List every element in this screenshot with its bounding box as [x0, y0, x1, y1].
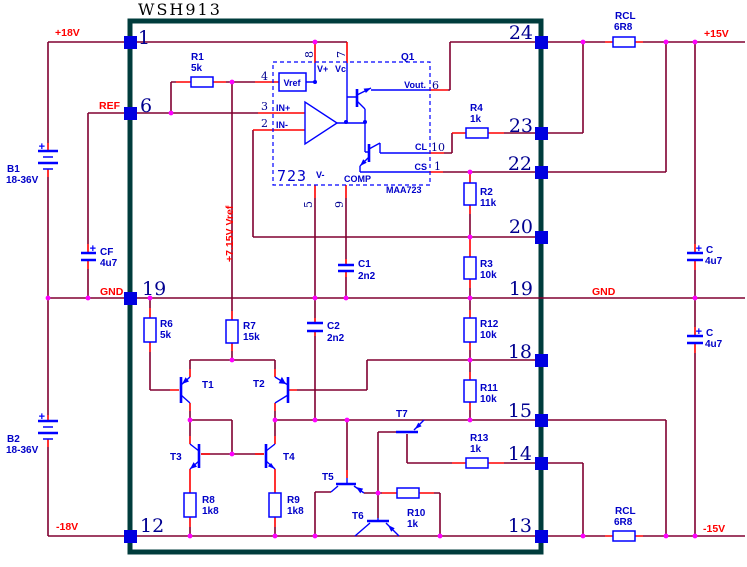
vref-block-label: Vref	[283, 78, 301, 88]
pin-number-6: 6	[432, 79, 439, 92]
resistor-R7[interactable]: R7 15k	[226, 320, 260, 343]
resistor-R2[interactable]: R2 11k	[464, 183, 497, 209]
pin-number: 19	[142, 278, 166, 300]
pin-number-9: 9	[333, 201, 346, 208]
resistor-R9[interactable]: R9 1k8	[269, 493, 304, 517]
regulator-designator: Q1	[401, 52, 415, 63]
transistor-T5[interactable]: T5	[322, 472, 364, 493]
battery-B2[interactable]: + B2 18-36V	[6, 411, 58, 456]
vplus-label: V+	[317, 64, 328, 74]
junction-dot	[344, 120, 348, 124]
value: 1k8	[202, 506, 219, 517]
ref: C	[706, 328, 713, 339]
ref: T4	[283, 452, 295, 463]
vc-label: Vc	[335, 64, 346, 74]
value: 10k	[480, 330, 497, 341]
ref: RCL	[615, 11, 636, 22]
capacitor-C2[interactable]: C2 2n2	[307, 321, 345, 344]
pin-number-8: 8	[303, 51, 316, 58]
ref: C	[706, 245, 713, 256]
junction-dot	[313, 80, 317, 84]
ref: B1	[7, 164, 20, 175]
ref: R10	[407, 508, 426, 519]
transistor-T4[interactable]: T4	[266, 444, 295, 469]
capacitor-C-top-right[interactable]: + C 4u7	[687, 243, 723, 267]
internal-transistor-bars	[357, 89, 369, 162]
pin-number-7: 7	[335, 51, 348, 58]
pin-number-10: 10	[431, 141, 445, 154]
ref: R1	[191, 52, 204, 63]
pin-number: 1	[138, 27, 150, 49]
value: 11k	[480, 198, 497, 209]
pin-number: 15	[508, 400, 532, 422]
resistor-R10[interactable]: R10 1k	[397, 488, 426, 530]
ref: T6	[352, 511, 364, 522]
value: 1k8	[287, 506, 304, 517]
pin-number-2: 2	[261, 117, 268, 130]
capacitor-C1[interactable]: C1 2n2	[338, 259, 376, 282]
comp-label: COMP	[344, 174, 371, 184]
ref: C2	[327, 321, 340, 332]
pin-number-1: 1	[434, 160, 441, 173]
transistor-T6[interactable]: T6	[352, 511, 399, 536]
junction-dot	[363, 120, 367, 124]
value: 6R8	[614, 517, 633, 528]
capacitor-CF[interactable]: + CF 4u7	[81, 243, 118, 269]
value: 2n2	[358, 271, 376, 282]
pin-number-19-right: 19	[509, 278, 533, 300]
ref: B2	[7, 434, 20, 445]
ref: R13	[470, 433, 489, 444]
ref: C1	[358, 259, 371, 270]
ref: R12	[480, 319, 499, 330]
net-label-ref: REF	[99, 100, 121, 112]
in-minus-label: IN-	[276, 120, 288, 130]
polarity-plus: +	[39, 141, 45, 153]
polarity-plus: +	[39, 411, 45, 423]
net-label-plus18: +18V	[55, 27, 80, 39]
resistor-R6[interactable]: R6 5k	[144, 318, 173, 342]
ref: R6	[160, 319, 173, 330]
value: 5k	[160, 330, 172, 341]
module-title: WSH913	[138, 0, 222, 19]
internal-npn-arrow	[364, 88, 371, 93]
net-label-minus18: -18V	[56, 521, 78, 533]
ref: CF	[100, 247, 113, 258]
polarity-plus: +	[696, 326, 702, 338]
value: 18-36V	[6, 175, 39, 186]
value: 1k	[407, 519, 419, 530]
capacitor-C-bottom-right[interactable]: + C 4u7	[687, 326, 723, 350]
value: 10k	[480, 394, 497, 405]
transistor-T1[interactable]: T1	[181, 377, 214, 403]
value: 4u7	[705, 256, 723, 267]
pin-number: 23	[509, 115, 533, 137]
ref: T7	[396, 409, 408, 420]
resistor-R1[interactable]: R1 5k	[191, 52, 213, 87]
vminus-label: V-	[316, 170, 325, 180]
pin-number-4: 4	[261, 70, 268, 83]
net-label-gnd-left: GND	[100, 286, 124, 298]
ref: RCL	[615, 506, 636, 517]
resistor-RCL-top[interactable]: RCL 6R8	[613, 11, 636, 47]
pin-number: 18	[508, 341, 532, 363]
resistor-RCL-bottom[interactable]: RCL 6R8	[613, 506, 636, 541]
resistor-R12[interactable]: R12 10k	[464, 318, 499, 342]
net-label-plus15: +15V	[704, 28, 729, 40]
ref: R4	[470, 103, 483, 114]
schematic-canvas: Vref V+ Vc IN+ IN- V- COMP Vout. CL CS 7…	[0, 0, 747, 567]
net-label-minus15: -15V	[703, 523, 725, 535]
module-boundary	[130, 21, 541, 552]
resistor-R13[interactable]: R13 1k	[466, 433, 489, 468]
net-label-vref-rail: +7.15V Vref	[224, 205, 236, 262]
resistor-R11[interactable]: R11 10k	[464, 380, 498, 405]
value: 15k	[243, 332, 260, 343]
ref: T3	[170, 452, 182, 463]
value: 4u7	[705, 339, 723, 350]
ref: R7	[243, 321, 256, 332]
polarity-plus: +	[90, 243, 96, 255]
in-plus-label: IN+	[276, 103, 290, 113]
ref: R2	[480, 187, 493, 198]
pin-number-3: 3	[261, 100, 268, 113]
ref: R11	[480, 383, 498, 394]
cs-label: CS	[414, 162, 427, 172]
pin-number: 6	[140, 95, 152, 117]
pin-number: 24	[509, 22, 533, 44]
resistor-R4[interactable]: R4 1k	[466, 103, 488, 138]
ref: T1	[202, 380, 214, 391]
pin-number: 12	[140, 515, 164, 537]
value: 10k	[480, 270, 497, 281]
ref: T5	[322, 472, 334, 483]
regulator-core-label: 723	[277, 167, 307, 185]
transistor-T2[interactable]: T2	[253, 377, 288, 403]
pin-number: 20	[509, 216, 533, 238]
schematic-drawing: Vref V+ Vc IN+ IN- V- COMP Vout. CL CS 7…	[0, 0, 747, 567]
transistor-T3[interactable]: T3	[170, 444, 199, 469]
battery-B1[interactable]: + B1 18-36V	[6, 141, 58, 186]
value: 6R8	[614, 22, 633, 33]
value: 1k	[470, 444, 482, 455]
net-label-gnd-right: GND	[592, 286, 616, 298]
value: 1k	[470, 114, 482, 125]
ref: R9	[287, 495, 300, 506]
polarity-plus: +	[696, 243, 702, 255]
pin-number: 14	[508, 443, 532, 465]
pin-number: 13	[508, 515, 532, 537]
value: 2n2	[327, 333, 345, 344]
regulator-part-number: MAA723	[386, 185, 422, 195]
cl-label: CL	[415, 142, 427, 152]
resistor-R8[interactable]: R8 1k8	[184, 493, 219, 517]
value: 5k	[191, 63, 203, 74]
resistor-R3[interactable]: R3 10k	[464, 257, 497, 281]
pin-number-5: 5	[302, 201, 315, 208]
value: 18-36V	[6, 445, 39, 456]
pin-number: 22	[508, 153, 532, 175]
ref: R8	[202, 495, 215, 506]
vout-label: Vout.	[404, 80, 426, 90]
ref: T2	[253, 379, 265, 390]
ref: R3	[480, 259, 493, 270]
opamp-triangle	[305, 102, 337, 144]
value: 4u7	[100, 258, 118, 269]
